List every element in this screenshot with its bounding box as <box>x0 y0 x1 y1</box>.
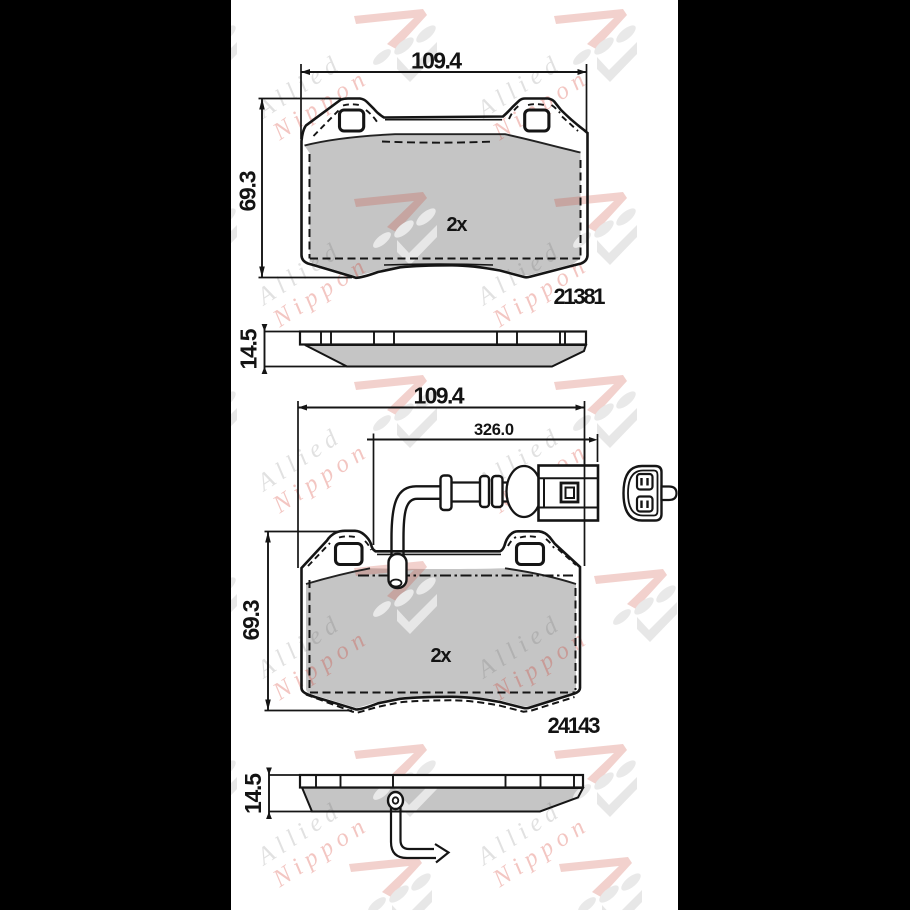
svg-text:2x: 2x <box>431 645 452 667</box>
svg-text:21381: 21381 <box>554 284 606 309</box>
svg-text:69.3: 69.3 <box>238 600 264 641</box>
svg-text:326.0: 326.0 <box>474 421 514 439</box>
svg-text:109.4: 109.4 <box>414 383 465 409</box>
svg-text:69.3: 69.3 <box>235 171 261 212</box>
svg-text:24143: 24143 <box>548 713 601 738</box>
svg-text:109.4: 109.4 <box>411 48 462 74</box>
svg-text:14.5: 14.5 <box>236 328 262 369</box>
svg-text:14.5: 14.5 <box>240 773 266 814</box>
svg-text:2x: 2x <box>447 214 468 236</box>
